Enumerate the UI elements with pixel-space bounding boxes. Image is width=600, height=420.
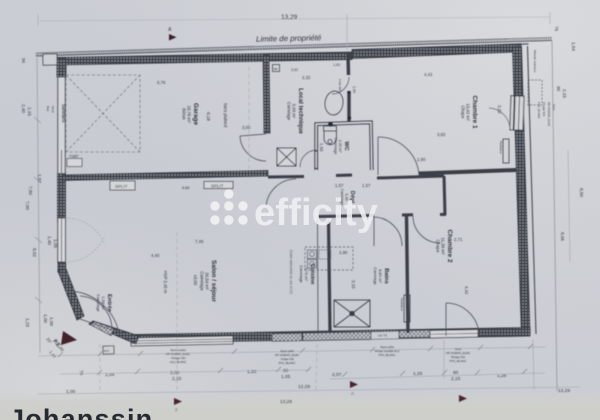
svg-text:Johanssin: Johanssin [9,404,153,420]
